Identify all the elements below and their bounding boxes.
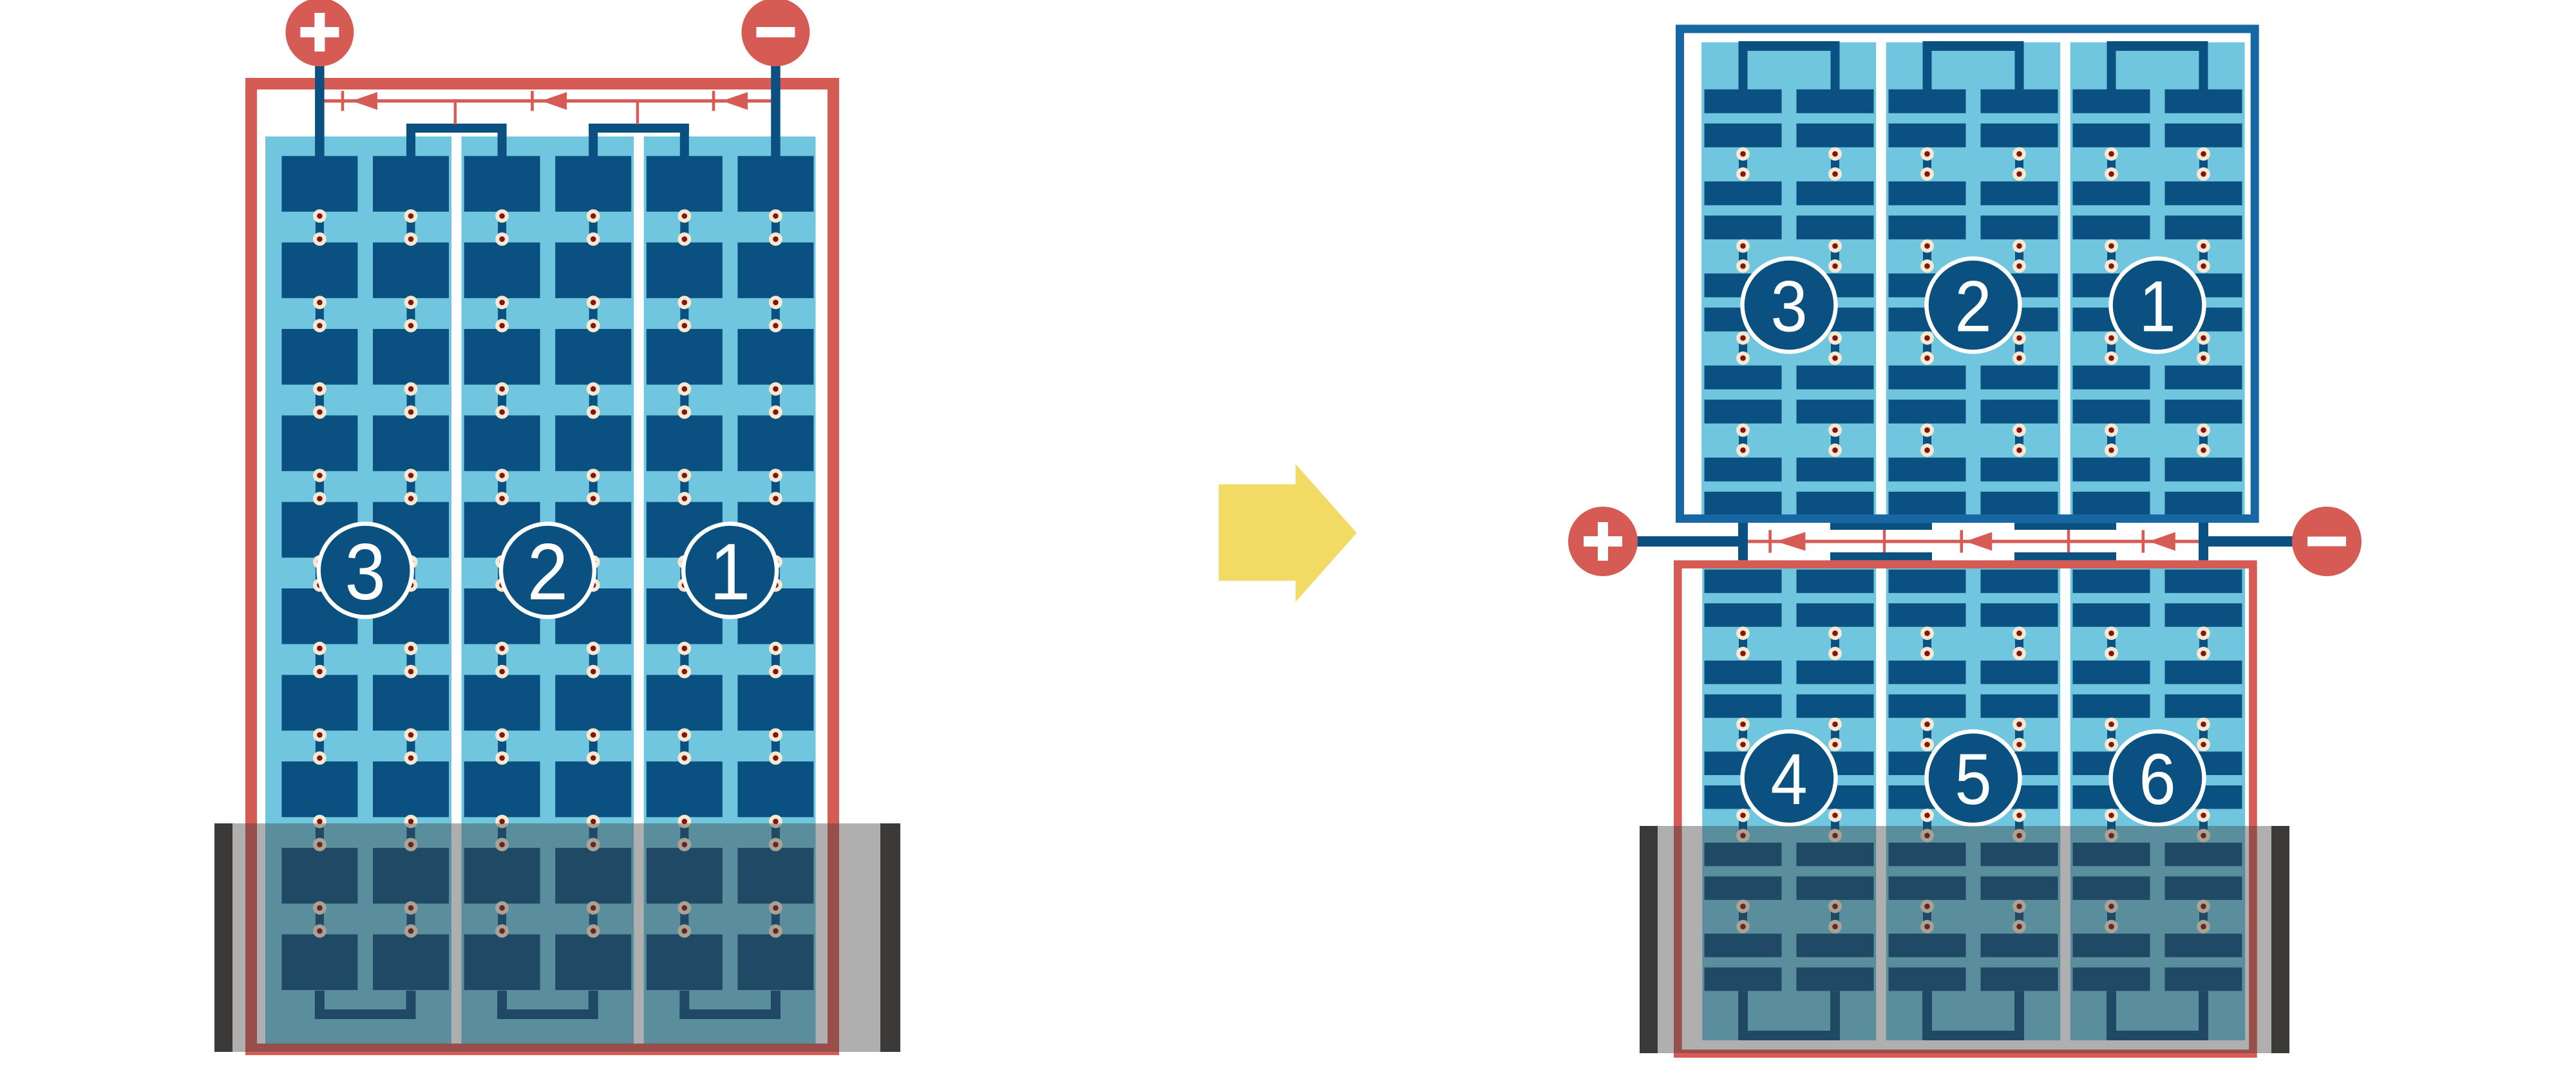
svg-text:3: 3 <box>345 528 385 617</box>
svg-text:3: 3 <box>1770 267 1807 347</box>
svg-text:2: 2 <box>1955 267 1991 347</box>
svg-text:6: 6 <box>2139 739 2175 820</box>
svg-text:1: 1 <box>710 528 750 617</box>
svg-text:2: 2 <box>527 528 568 617</box>
svg-text:5: 5 <box>1955 739 1991 820</box>
svg-text:1: 1 <box>2139 267 2175 347</box>
svg-text:4: 4 <box>1770 739 1807 820</box>
